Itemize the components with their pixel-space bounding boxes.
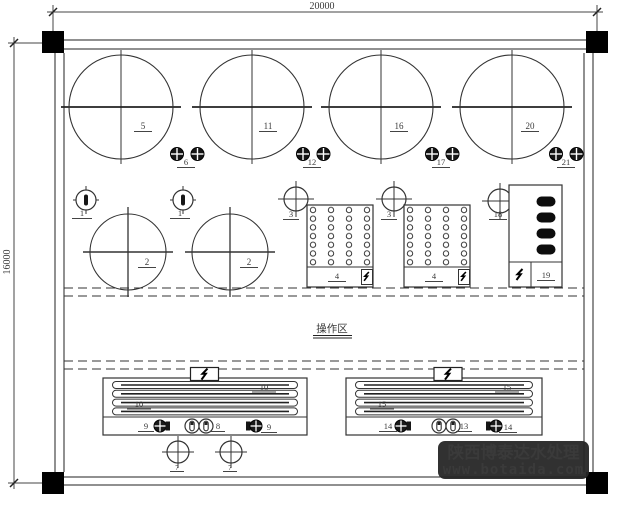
nozzle-dot-grid — [404, 206, 471, 268]
watermark-website-url: www.botaida.com — [443, 462, 584, 478]
control-panel-19: 19 — [509, 185, 562, 287]
device-number: 17 — [437, 157, 446, 167]
valve-symbol — [73, 186, 99, 214]
grid-number: 4 — [335, 271, 340, 281]
rack-number: 10 — [135, 399, 144, 409]
meter-symbol — [446, 419, 460, 433]
valve-number: 1 — [178, 208, 182, 218]
dimension-top: 20000 — [47, 1, 603, 31]
device-number: 6 — [184, 157, 188, 167]
operation-area-text: 操作区 — [316, 322, 348, 335]
tank-16: 16 — [321, 50, 441, 164]
breaker-block — [537, 213, 556, 223]
operation-area-label: 操作区 — [313, 322, 352, 338]
column-marker — [586, 472, 608, 494]
device-pair-21: 21 — [550, 148, 584, 168]
watermark-company-name: 陕西博泰达水处理 — [448, 442, 581, 462]
device-number: 3 — [387, 209, 391, 219]
meter-symbol — [432, 419, 446, 433]
plan-drawing-canvas: 20000 16000 5 11 — [0, 0, 628, 507]
tank-11: 11 — [192, 50, 312, 164]
dimension-top-value: 20000 — [310, 1, 335, 12]
pump-symbol — [250, 420, 262, 432]
column-marker — [586, 31, 608, 53]
meter-number: 13 — [460, 421, 469, 431]
pump-symbol — [490, 420, 502, 432]
rack-number: 15 — [378, 399, 387, 409]
tank-2a: 2 — [83, 207, 173, 297]
dimension-left: 16000 — [2, 37, 42, 489]
meter-symbol — [185, 419, 199, 433]
tank-number: 16 — [395, 121, 405, 131]
tank-2b: 2 — [185, 207, 275, 297]
device-number: 18 — [494, 209, 503, 219]
tank-number: 2 — [145, 257, 150, 267]
rack-number: 10 — [260, 382, 269, 392]
device-number: 21 — [562, 157, 571, 167]
equipment-rack-right: 15 15 14 13 14 — [346, 368, 542, 436]
pump-symbol — [154, 420, 166, 432]
pump-number: 9 — [267, 422, 271, 432]
meter-symbol — [199, 419, 213, 433]
device-number: 7 — [228, 464, 232, 472]
tank-number: 11 — [264, 121, 273, 131]
valve-1a: 1 — [72, 186, 99, 219]
device-7b: 7 — [215, 436, 247, 472]
tank-number: 5 — [141, 121, 146, 131]
dosing-grid-4a: 4 — [307, 205, 374, 287]
pump-number: 14 — [384, 421, 393, 431]
device-number: 3 — [289, 209, 293, 219]
nozzle-dot-grid — [307, 206, 374, 268]
column-marker — [42, 31, 64, 53]
breaker-block — [537, 245, 556, 255]
valve-symbol — [170, 186, 196, 214]
breaker-block — [537, 197, 556, 207]
tank-number: 2 — [247, 257, 252, 267]
pump-symbol — [395, 420, 407, 432]
breaker-block — [537, 229, 556, 239]
tank-20: 20 — [452, 50, 572, 164]
valve-number: 1 — [80, 208, 84, 218]
device-pair-12: 12 — [297, 148, 331, 168]
pump-number: 9 — [144, 421, 148, 431]
watermark: 陕西博泰达水处理 www.botaida.com — [438, 441, 589, 479]
device-number: 12 — [308, 157, 317, 167]
pump-flange — [166, 422, 171, 431]
tank-number: 20 — [526, 121, 536, 131]
device-pair-17: 17 — [426, 148, 460, 168]
device-7a: 7 — [162, 436, 194, 472]
column-marker — [42, 472, 64, 494]
tank-5: 5 — [61, 50, 181, 164]
dimension-left-value: 16000 — [2, 250, 13, 275]
pump-number: 14 — [504, 422, 513, 432]
grid-number: 4 — [432, 271, 437, 281]
panel-number: 19 — [542, 270, 551, 280]
meter-number: 8 — [216, 421, 220, 431]
equipment-rack-left: 10 10 9 8 9 — [103, 368, 307, 436]
dosing-grid-4b: 4 — [404, 205, 471, 287]
device-pair-6: 6 — [171, 148, 205, 168]
device-number: 7 — [175, 464, 179, 472]
valve-1b: 1 — [170, 186, 196, 219]
pump-flange — [407, 422, 412, 431]
rack-number: 15 — [503, 382, 512, 392]
plan-drawing: 20000 16000 5 11 — [0, 0, 628, 507]
